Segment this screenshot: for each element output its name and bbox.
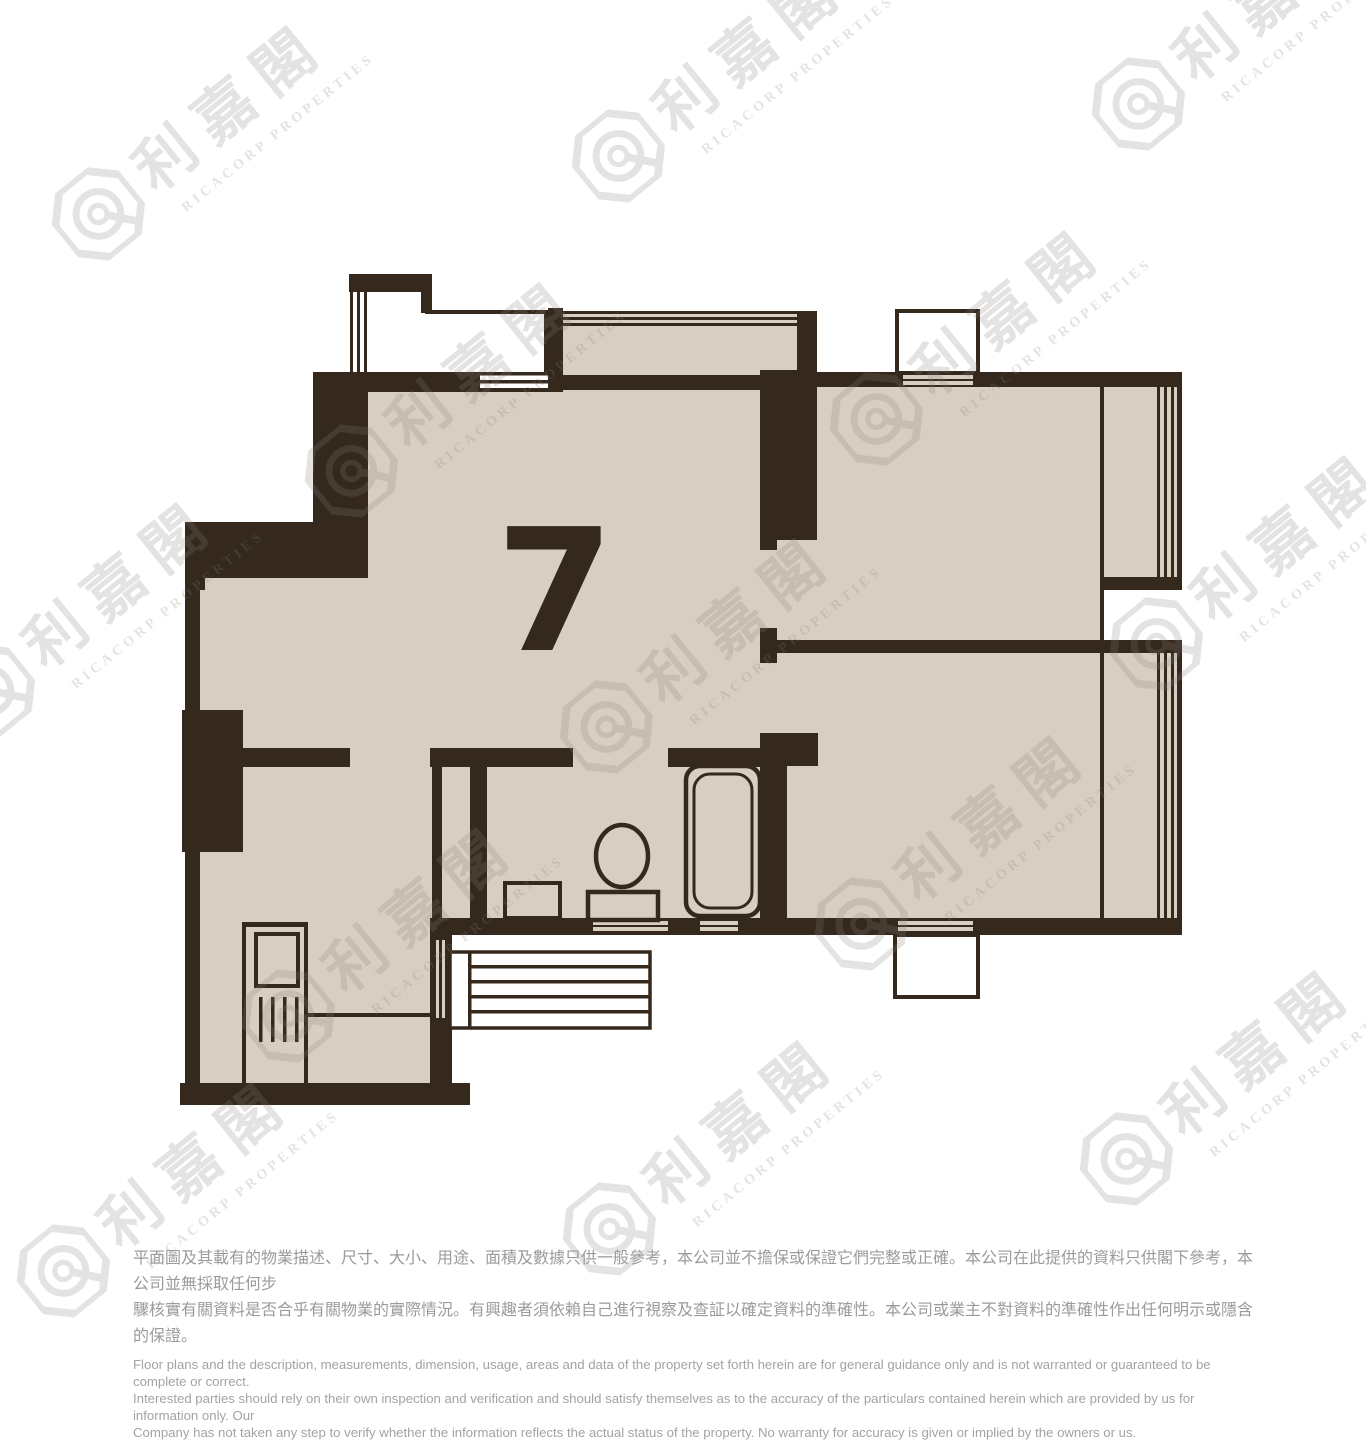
strip-window-line <box>563 317 797 320</box>
stove-grate-line <box>295 997 299 1042</box>
wall-stub <box>760 530 777 550</box>
stove-grate-line <box>259 997 263 1042</box>
wall-bathroom-left <box>470 767 487 918</box>
wall-kitchen-top <box>243 748 350 767</box>
wall-chunk <box>797 311 817 372</box>
louver-platform <box>450 952 650 1028</box>
louver-line <box>470 995 650 999</box>
strip-window-line <box>563 311 797 314</box>
balcony-wall-stub <box>421 292 432 313</box>
wall-bottom-bedroom2 <box>760 918 1182 935</box>
louver-line <box>470 965 650 969</box>
window-line <box>898 921 973 925</box>
wall-bathroom-top <box>430 748 573 767</box>
balcony-top-wall <box>349 274 432 292</box>
wall-block <box>787 733 818 766</box>
bay-sill <box>1100 640 1182 653</box>
window-line <box>436 940 439 1018</box>
window-line <box>898 927 973 931</box>
bedroom-2 <box>895 935 978 997</box>
wall-kitchen-right <box>432 767 442 918</box>
balcony-edge-line <box>425 310 548 314</box>
window-line <box>903 381 973 385</box>
wall-top-living <box>313 372 480 392</box>
toilet-tank <box>588 892 658 920</box>
floor-plan: 7 <box>0 0 1366 1366</box>
bay-sill <box>1100 577 1182 590</box>
louver-box <box>450 952 650 1028</box>
counter-edge <box>304 922 308 1083</box>
wall-step <box>185 578 205 590</box>
wall-bedroom1-left <box>760 370 817 540</box>
louver-line <box>470 980 650 984</box>
window-box <box>897 311 978 373</box>
window-line <box>480 388 548 392</box>
bay-notch <box>1104 590 1182 640</box>
bedroom-2-floor <box>760 653 1178 935</box>
wall-left-upper <box>313 372 368 522</box>
unit-number: 7 <box>496 493 614 691</box>
wall-outer-right <box>1177 372 1182 935</box>
bay-window-strip-floor <box>548 311 797 376</box>
window-line <box>480 380 548 384</box>
window-line <box>700 927 738 931</box>
strip-sill <box>563 375 762 390</box>
balcony-window-line <box>364 292 367 372</box>
disclaimer-en-line1: Floor plans and the description, measure… <box>133 1356 1255 1390</box>
wall-bathroom-right <box>760 733 787 918</box>
disclaimer-zh-line1: 平面圖及其載有的物業描述、尺寸、大小、用途、面積及數據只供一般參考，本公司並不擔… <box>133 1245 1255 1297</box>
wall-kitchen-bottom <box>180 1083 470 1105</box>
bedroom-1 <box>897 311 978 385</box>
disclaimer-en-line2: Interested parties should rely on their … <box>133 1390 1255 1424</box>
strip-window-line <box>563 323 797 326</box>
wall-band-left <box>185 522 368 578</box>
window-line <box>442 940 445 1018</box>
counter-edge <box>242 922 308 927</box>
wall-chunk <box>548 308 563 392</box>
stove-grate-line <box>283 997 287 1042</box>
window-line <box>593 927 668 931</box>
wall-top-bedroom1 <box>815 372 1182 387</box>
window-line <box>903 375 973 379</box>
disclaimer-zh-line2: 驟核實有關資料是否合乎有關物業的實際情況。有興趣者須依賴自己進行視察及查証以確定… <box>133 1297 1255 1349</box>
disclaimer-en-line3: Company has not taken any step to verify… <box>133 1424 1255 1441</box>
wall-bedroom-divider <box>777 640 1100 653</box>
balcony-window-line <box>357 292 360 372</box>
louver-line <box>470 1010 650 1014</box>
wall-stub <box>760 628 777 663</box>
disclaimer: 平面圖及其載有的物業描述、尺寸、大小、用途、面積及數據只供一般參考，本公司並不擔… <box>133 1245 1255 1441</box>
wall-block-left <box>182 710 243 852</box>
balcony-edge-line <box>544 310 548 376</box>
balcony <box>349 274 548 376</box>
ac-platform-box <box>895 935 978 997</box>
window-line <box>700 921 738 925</box>
stove-grate-line <box>271 997 275 1042</box>
window-line <box>480 372 548 376</box>
louver-divider <box>468 952 472 1028</box>
balcony-window-line <box>350 292 353 372</box>
counter-edge <box>242 922 246 1083</box>
kitchen-threshold-line <box>307 1013 433 1017</box>
